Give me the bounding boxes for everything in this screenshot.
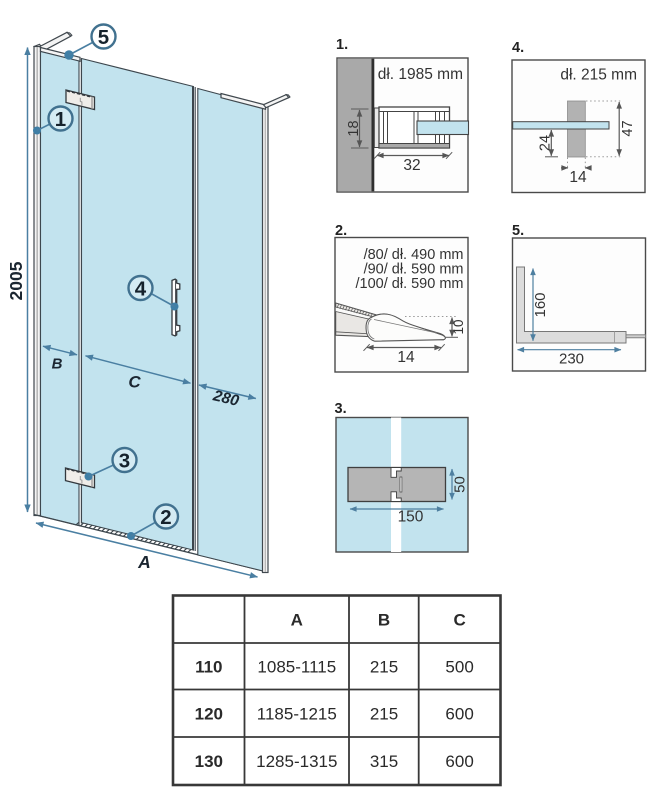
svg-text:47: 47 [620,120,636,136]
svg-text:1185-1215: 1185-1215 [257,704,337,723]
svg-text:3.: 3. [335,401,347,417]
svg-text:5: 5 [98,26,109,49]
svg-text:3: 3 [119,449,130,472]
svg-text:2.: 2. [335,223,347,239]
svg-text:4.: 4. [512,40,524,56]
svg-text:1.: 1. [336,37,348,53]
svg-text:10: 10 [451,319,466,334]
svg-text:32: 32 [403,157,420,174]
svg-text:B: B [378,611,390,630]
svg-text:2: 2 [160,506,171,529]
svg-text:1: 1 [55,108,66,131]
svg-text:14: 14 [397,349,415,366]
svg-text:C: C [453,611,465,630]
svg-text:B: B [52,356,63,373]
svg-text:120: 120 [195,704,223,723]
svg-text:14: 14 [569,169,587,186]
svg-text:C: C [128,373,141,392]
svg-text:4: 4 [135,277,147,300]
svg-text:130: 130 [195,752,223,771]
svg-text:5.: 5. [512,223,524,239]
svg-text:600: 600 [445,704,473,723]
svg-text:/100/ dł. 590 mm: /100/ dł. 590 mm [356,276,464,292]
svg-text:A: A [137,552,151,572]
svg-text:110: 110 [195,657,222,676]
svg-text:A: A [291,611,303,630]
svg-text:24: 24 [537,135,553,151]
svg-text:215: 215 [370,657,398,676]
svg-text:150: 150 [398,509,424,526]
svg-text:160: 160 [532,292,549,317]
svg-text:1085-1115: 1085-1115 [257,657,336,676]
svg-text:500: 500 [445,657,473,676]
svg-text:600: 600 [445,752,473,771]
svg-text:dł. 1985 mm: dł. 1985 mm [378,66,463,83]
svg-text:1285-1315: 1285-1315 [256,752,337,771]
svg-text:18: 18 [346,120,362,136]
svg-text:2005: 2005 [6,261,26,300]
svg-text:230: 230 [559,351,584,368]
svg-text:dł. 215 mm: dł. 215 mm [560,67,637,84]
svg-text:50: 50 [451,476,468,493]
svg-text:315: 315 [370,752,398,771]
svg-text:215: 215 [370,704,398,723]
